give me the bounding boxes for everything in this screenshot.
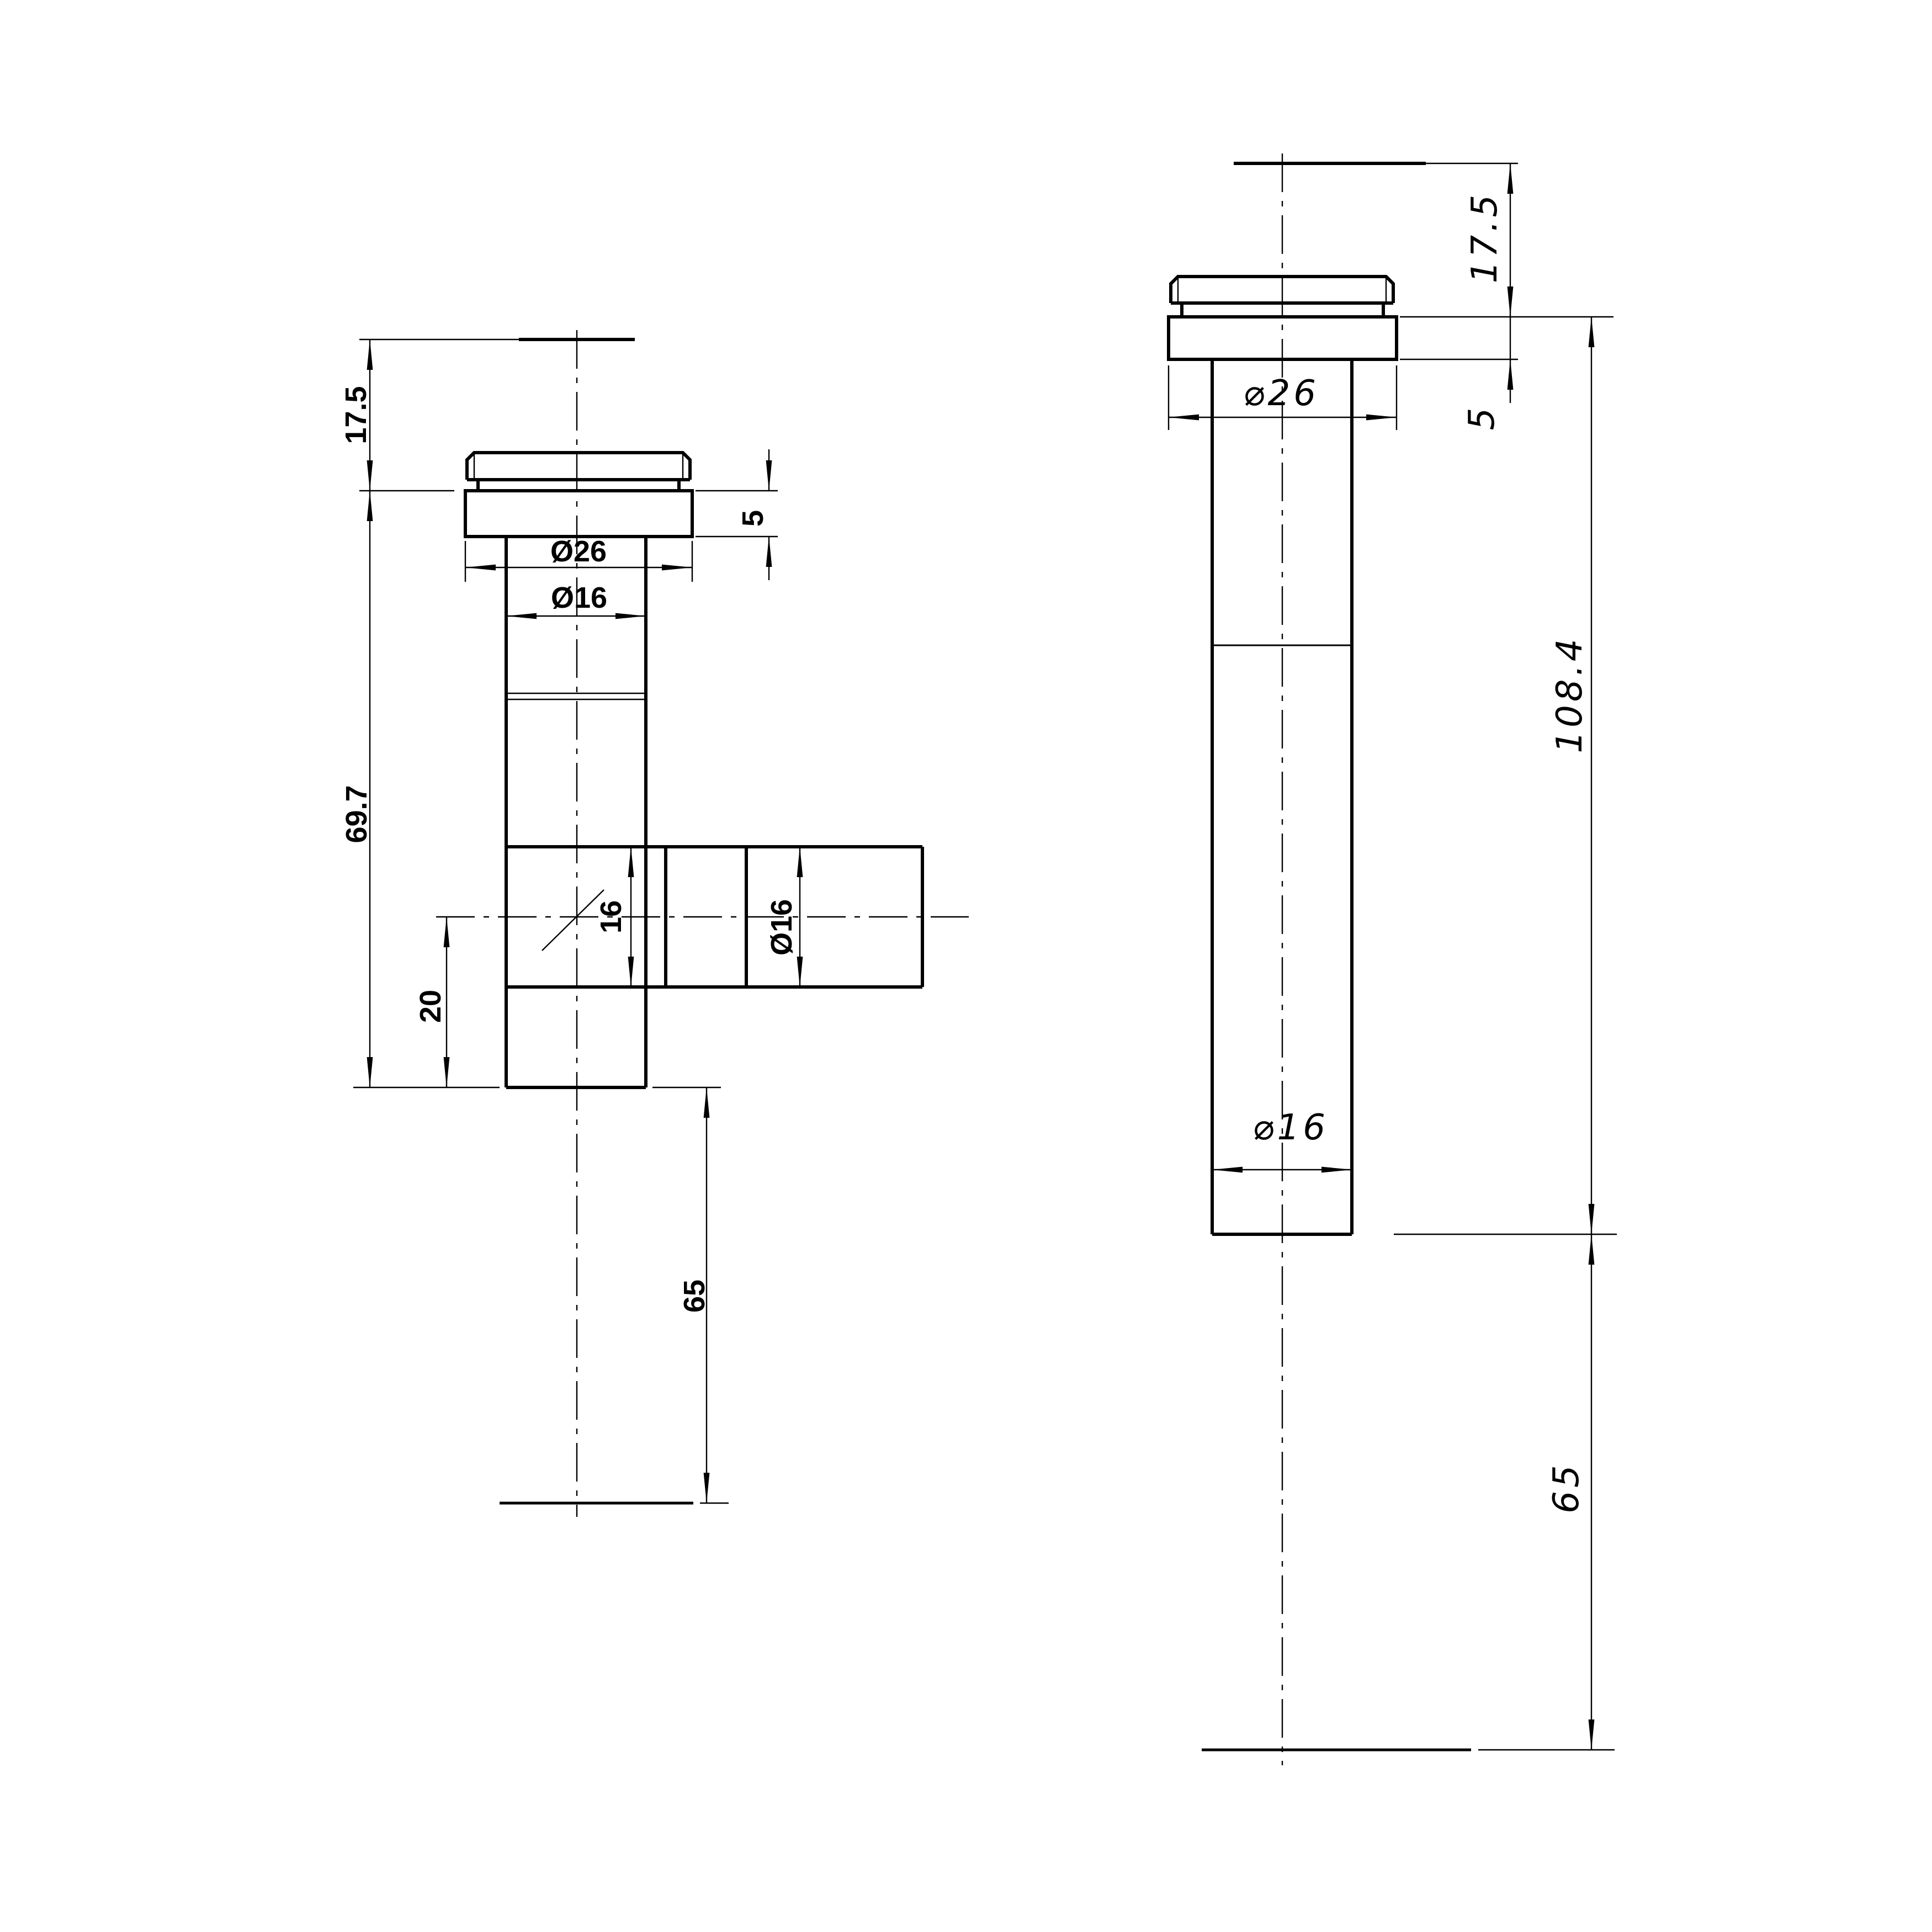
dim-label-tail-length-side: 65: [677, 1280, 712, 1313]
side-flange: [465, 491, 692, 537]
dim-label-tube-diameter-side: Ø16: [551, 581, 607, 615]
dim-label-overall-length: 108.4: [1549, 635, 1590, 753]
dim-label-flange-thickness-front: 5: [1462, 405, 1503, 431]
dim-label-branch-bore: 16: [594, 900, 628, 933]
dim-label-cap-height-front: 17.5: [1464, 192, 1505, 284]
dim-label-flange-thickness-side: 5: [736, 510, 770, 527]
dim-label-branch-diameter: Ø16: [765, 899, 799, 956]
dim-label-branch-offset: 20: [413, 990, 448, 1023]
dim-label-cap-height-side: 17.5: [339, 386, 373, 444]
side-view: [353, 330, 969, 1517]
drawing-canvas: [0, 0, 1932, 1932]
drawing-sheet: 17.5 69.7 20 65 5 Ø26 Ø16 16 Ø16 17.5 5 …: [0, 0, 1932, 1932]
dim-label-body-length: 69.7: [339, 785, 374, 843]
front-view: [1169, 153, 1617, 1765]
dim-label-tail-length-front: 65: [1546, 1462, 1587, 1513]
dim-label-flange-diameter-side: Ø26: [550, 534, 607, 569]
side-cap: [467, 453, 690, 480]
dim-label-flange-diameter-front: ⌀26: [1243, 373, 1319, 414]
dim-label-tube-diameter-front: ⌀16: [1252, 1107, 1329, 1148]
